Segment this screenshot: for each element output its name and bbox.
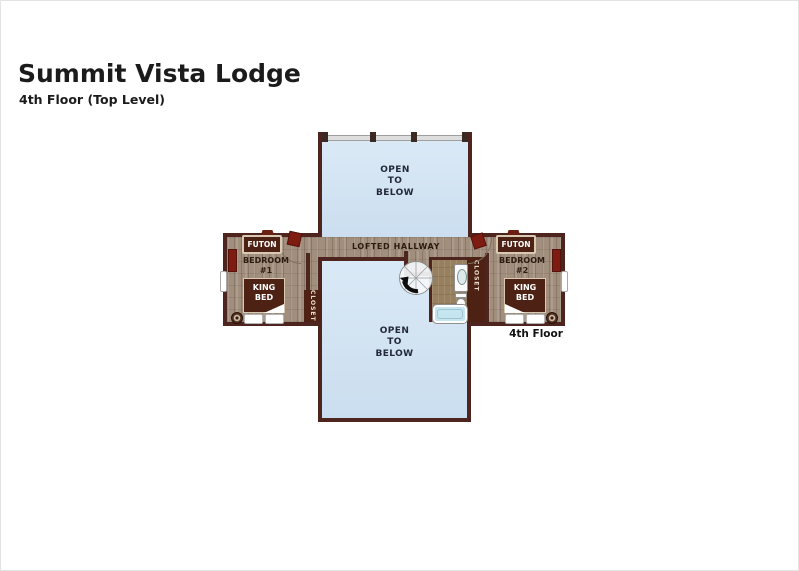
sink-vanity-icon (454, 264, 468, 292)
sink-bowl (457, 269, 467, 285)
closet-bedroom1: CLOSET (304, 290, 321, 322)
floorplan-page: Summit Vista Lodge 4th Floor (Top Level)… (0, 0, 799, 571)
page-title: Summit Vista Lodge (18, 59, 301, 88)
futon-bedroom2: FUTON (496, 235, 536, 254)
floor-tag: 4th Floor (501, 328, 571, 340)
page-subtitle: 4th Floor (Top Level) (19, 92, 165, 107)
pillow (244, 314, 263, 324)
lamp-icon (546, 312, 558, 324)
lamp-icon (231, 312, 243, 324)
pillow (505, 314, 524, 324)
bathtub-icon (433, 305, 467, 323)
railing-post (322, 132, 328, 142)
open-to-below-upper-label: OPEN TO BELOW (318, 165, 472, 199)
spiral-staircase-icon (398, 260, 436, 298)
railing-post (370, 132, 376, 142)
window-icon (561, 271, 568, 292)
hallway-bottom-wall (322, 257, 407, 261)
bedroom2-inner-wall (485, 253, 489, 322)
closet-label: CLOSET (304, 290, 321, 322)
dresser-icon (552, 249, 561, 272)
loft-railing (323, 135, 467, 141)
window-icon (220, 271, 227, 292)
railing-post (462, 132, 468, 142)
bathtub-basin (437, 309, 463, 319)
futon-bedroom1: FUTON (242, 235, 282, 254)
bedroom2-name: BEDROOM #2 (495, 256, 549, 276)
bedroom1-name: BEDROOM #1 (239, 256, 293, 276)
pillow (265, 314, 284, 324)
dresser-icon (228, 249, 237, 272)
pillow (526, 314, 545, 324)
closet-bedroom2: CLOSET (467, 257, 485, 322)
king-bed-bedroom1: KING BED (243, 278, 285, 325)
king-bed-bedroom2: KING BED (504, 278, 546, 325)
open-to-below-lower-label: OPEN TO BELOW (318, 326, 471, 360)
railing-post (411, 132, 417, 142)
lofted-hallway-label: LOFTED HALLWAY (331, 242, 461, 252)
